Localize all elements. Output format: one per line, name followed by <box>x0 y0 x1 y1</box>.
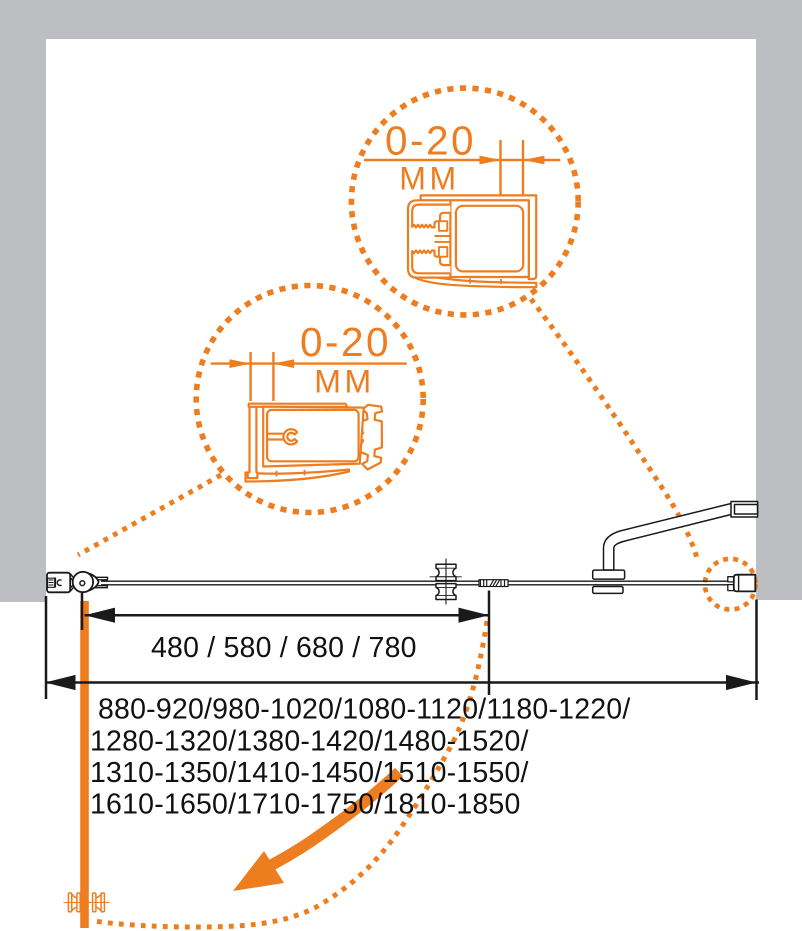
svg-text:MM: MM <box>399 161 460 197</box>
svg-text:0-20: 0-20 <box>385 118 476 164</box>
svg-text:480 / 580 / 680 / 780: 480 / 580 / 680 / 780 <box>151 632 417 664</box>
svg-text:1310-1350/1410-1450/1510-1550/: 1310-1350/1410-1450/1510-1550/ <box>90 757 529 789</box>
svg-text:1610-1650/1710-1750/1810-1850: 1610-1650/1710-1750/1810-1850 <box>90 789 521 821</box>
svg-text:0-20: 0-20 <box>300 319 391 365</box>
svg-text:880-920/980-1020/1080-1120/118: 880-920/980-1020/1080-1120/1180-1220/ <box>98 694 630 726</box>
svg-text:MM: MM <box>314 364 375 400</box>
svg-text:1280-1320/1380-1420/1480-1520/: 1280-1320/1380-1420/1480-1520/ <box>90 725 529 757</box>
